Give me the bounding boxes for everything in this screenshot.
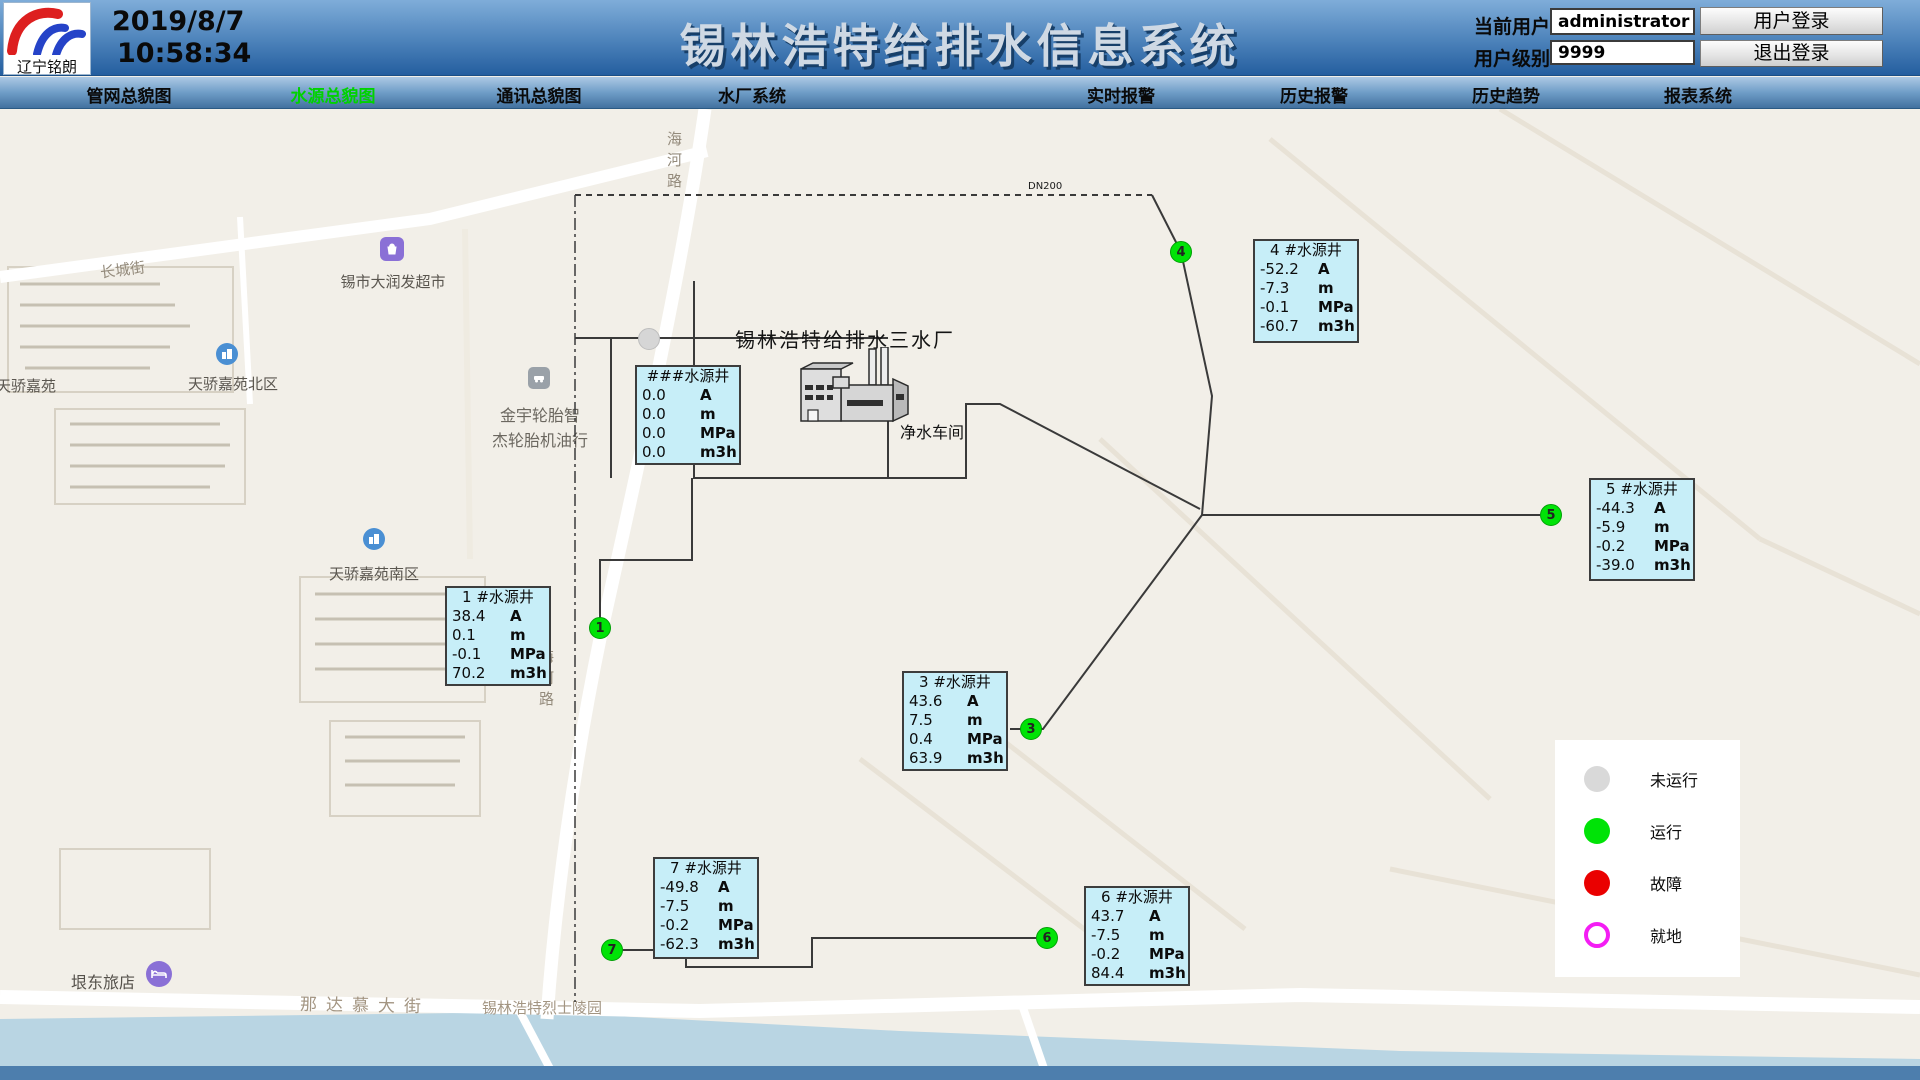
- header-bar: 辽宁铭朗 2019/8/7 10:58:34 锡林浩特给排水信息系统 当前用户 …: [0, 0, 1920, 76]
- running-status-icon: [1584, 818, 1610, 844]
- well-pressure-value: 0.4: [909, 730, 933, 749]
- well-level-value: 7.5: [909, 711, 933, 730]
- notrunning-status-icon: [1584, 766, 1610, 792]
- unit-current: A: [967, 692, 979, 711]
- system-title: 锡林浩特给排水信息系统: [680, 10, 1241, 76]
- current-user-label: 当前用户: [1474, 12, 1550, 39]
- well-box-title: 6 #水源井: [1086, 888, 1188, 907]
- company-name: 辽宁铭朗: [17, 59, 77, 76]
- legend-label: 运行: [1650, 819, 1682, 843]
- well-pressure-value: -0.2: [1596, 537, 1625, 556]
- workshop-label: 净水车间: [900, 419, 964, 443]
- well-pressure-value: 0.0: [642, 424, 666, 443]
- company-logo: 辽宁铭朗: [3, 2, 91, 75]
- well-level-value: -5.9: [1596, 518, 1625, 537]
- current-time: 10:58:34: [112, 38, 251, 70]
- well-marker-7: 7: [601, 939, 623, 961]
- pipe-dn200-label: DN200: [1028, 181, 1062, 192]
- well-flow-value: 63.9: [909, 749, 942, 768]
- current-date: 2019/8/7: [112, 6, 251, 38]
- unit-pressure: MPa: [967, 730, 1003, 749]
- unit-pressure: MPa: [718, 916, 754, 935]
- well-pressure-value: -0.2: [660, 916, 689, 935]
- login-button[interactable]: 用户登录: [1700, 7, 1883, 35]
- well-marker-5: 5: [1540, 504, 1562, 526]
- unit-pressure: MPa: [1654, 537, 1690, 556]
- well-current-value: 43.7: [1091, 907, 1124, 926]
- well-current-value: 38.4: [452, 607, 485, 626]
- user-level-label: 用户级别: [1474, 44, 1550, 71]
- local-status-icon: [1584, 922, 1610, 948]
- well-level-value: -7.5: [1091, 926, 1120, 945]
- well-box-title: 3 #水源井: [904, 673, 1006, 692]
- well-level-value: 0.0: [642, 405, 666, 424]
- well-current-value: 0.0: [642, 386, 666, 405]
- well-marker-1: 1: [589, 617, 611, 639]
- well-flow-value: -60.7: [1260, 317, 1299, 336]
- scada-window: 辽宁铭朗 2019/8/7 10:58:34 锡林浩特给排水信息系统 当前用户 …: [0, 0, 1920, 1080]
- unit-level: m: [700, 405, 716, 424]
- well-current-value: -49.8: [660, 878, 699, 897]
- well-marker-notrunning: [638, 328, 660, 350]
- bottom-strip: [0, 1066, 1920, 1080]
- legend-row-running: 运行: [1555, 805, 1740, 857]
- legend-label: 就地: [1650, 923, 1682, 947]
- unit-pressure: MPa: [1149, 945, 1185, 964]
- unit-flow: m3h: [1149, 964, 1186, 983]
- status-legend: 未运行 运行 故障 就地: [1555, 740, 1740, 977]
- well-flow-value: 84.4: [1091, 964, 1124, 983]
- well-pressure-value: -0.2: [1091, 945, 1120, 964]
- legend-row-local: 就地: [1555, 909, 1740, 961]
- well-data-box-unknown: ###水源井 0.0A 0.0m 0.0MPa 0.0m3h: [635, 365, 741, 465]
- legend-label: 未运行: [1650, 767, 1698, 791]
- unit-current: A: [718, 878, 730, 897]
- unit-level: m: [967, 711, 983, 730]
- current-user-field[interactable]: [1550, 8, 1695, 35]
- unit-flow: m3h: [700, 443, 737, 462]
- unit-level: m: [1318, 279, 1334, 298]
- well-pressure-value: -0.1: [1260, 298, 1289, 317]
- company-logo-icon: [6, 3, 88, 59]
- well-data-box-1: 1 #水源井 38.4A 0.1m -0.1MPa 70.2m3h: [445, 586, 551, 686]
- well-data-box-6: 6 #水源井 43.7A -7.5m -0.2MPa 84.4m3h: [1084, 886, 1190, 986]
- legend-row-notrunning: 未运行: [1555, 753, 1740, 805]
- well-marker-3: 3: [1020, 718, 1042, 740]
- nav-item-comm-overview[interactable]: 通讯总貌图: [497, 82, 582, 107]
- well-flow-value: -62.3: [660, 935, 699, 954]
- unit-level: m: [1654, 518, 1670, 537]
- nav-item-history-alarm[interactable]: 历史报警: [1280, 82, 1348, 107]
- unit-level: m: [510, 626, 526, 645]
- user-level-field[interactable]: [1550, 40, 1695, 65]
- fault-status-icon: [1584, 870, 1610, 896]
- unit-flow: m3h: [967, 749, 1004, 768]
- unit-flow: m3h: [1654, 556, 1691, 575]
- nav-item-realtime-alarm[interactable]: 实时报警: [1087, 82, 1155, 107]
- unit-pressure: MPa: [700, 424, 736, 443]
- legend-label: 故障: [1650, 871, 1682, 895]
- well-flow-value: 70.2: [452, 664, 485, 683]
- well-level-value: -7.5: [660, 897, 689, 916]
- unit-pressure: MPa: [510, 645, 546, 664]
- unit-current: A: [1318, 260, 1330, 279]
- well-box-title: 4 #水源井: [1255, 241, 1357, 260]
- well-data-box-3: 3 #水源井 43.6A 7.5m 0.4MPa 63.9m3h: [902, 671, 1008, 771]
- well-data-box-4: 4 #水源井 -52.2A -7.3m -0.1MPa -60.7m3h: [1253, 239, 1359, 343]
- legend-row-fault: 故障: [1555, 857, 1740, 909]
- nav-item-report-system[interactable]: 报表系统: [1664, 82, 1732, 107]
- well-current-value: -52.2: [1260, 260, 1299, 279]
- well-pressure-value: -0.1: [452, 645, 481, 664]
- unit-current: A: [700, 386, 712, 405]
- well-level-value: -7.3: [1260, 279, 1289, 298]
- nav-item-pipeline-overview[interactable]: 管网总貌图: [87, 82, 172, 107]
- well-current-value: -44.3: [1596, 499, 1635, 518]
- well-data-box-7: 7 #水源井 -49.8A -7.5m -0.2MPa -62.3m3h: [653, 857, 759, 959]
- well-level-value: 0.1: [452, 626, 476, 645]
- well-marker-6: 6: [1036, 927, 1058, 949]
- map-canvas[interactable]: 长城街 海河路 海河路 那达慕大街 锡林浩特烈士陵园 锡市大润发超市 天骄嘉苑北…: [0, 109, 1920, 1080]
- well-box-title: 1 #水源井: [447, 588, 549, 607]
- unit-current: A: [1149, 907, 1161, 926]
- well-flow-value: 0.0: [642, 443, 666, 462]
- logout-button[interactable]: 退出登录: [1700, 40, 1883, 67]
- well-flow-value: -39.0: [1596, 556, 1635, 575]
- unit-level: m: [718, 897, 734, 916]
- well-box-title: ###水源井: [637, 367, 739, 386]
- unit-level: m: [1149, 926, 1165, 945]
- main-nav: 管网总貌图 水源总貌图 通讯总貌图 水厂系统 实时报警 历史报警 历史趋势 报表…: [0, 77, 1920, 109]
- unit-flow: m3h: [510, 664, 547, 683]
- unit-current: A: [1654, 499, 1666, 518]
- nav-item-watersource-overview[interactable]: 水源总貌图: [291, 82, 376, 107]
- well-current-value: 43.6: [909, 692, 942, 711]
- well-marker-4: 4: [1170, 241, 1192, 263]
- well-box-title: 7 #水源井: [655, 859, 757, 878]
- unit-flow: m3h: [1318, 317, 1355, 336]
- nav-item-waterplant-system[interactable]: 水厂系统: [718, 82, 786, 107]
- unit-pressure: MPa: [1318, 298, 1354, 317]
- factory-icon: [795, 347, 917, 429]
- well-box-title: 5 #水源井: [1591, 480, 1693, 499]
- nav-item-history-trend[interactable]: 历史趋势: [1472, 82, 1540, 107]
- datetime-display: 2019/8/7 10:58:34: [112, 6, 251, 70]
- well-data-box-5: 5 #水源井 -44.3A -5.9m -0.2MPa -39.0m3h: [1589, 478, 1695, 581]
- unit-current: A: [510, 607, 522, 626]
- unit-flow: m3h: [718, 935, 755, 954]
